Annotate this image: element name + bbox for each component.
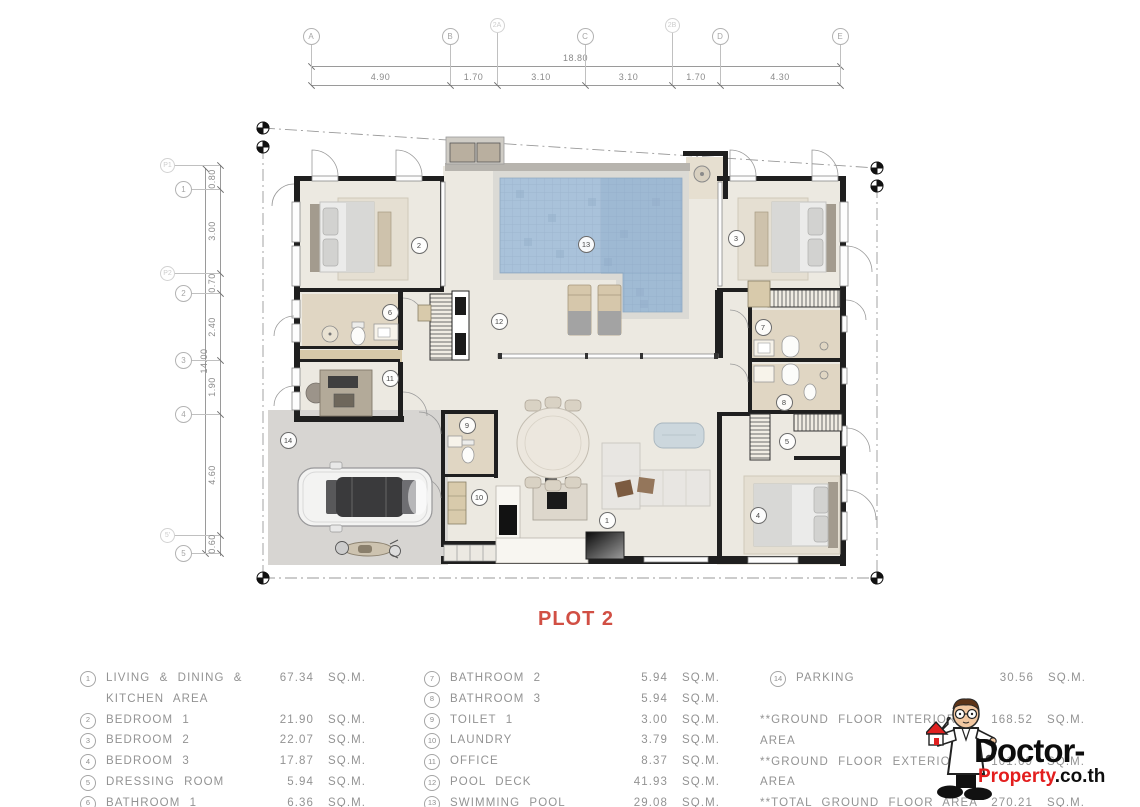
room-marker-9: 9 xyxy=(459,417,476,434)
legend-item: 1LIVING & DINING & KITCHEN AREA67.34SQ.M… xyxy=(80,668,380,710)
grid-stem xyxy=(840,45,841,85)
legend-item-unit: SQ.M. xyxy=(682,772,720,793)
floor-plan-page: 18.80AB2AC2BDE4.901.703.103.101.704.3014… xyxy=(0,0,1140,807)
bedroom1-bed xyxy=(310,198,408,280)
legend-item-name: OFFICE xyxy=(450,751,610,772)
legend-item-area: 41.93 xyxy=(610,772,668,793)
grid-bubble-left-2: 2 xyxy=(175,285,192,302)
room-marker-6: 6 xyxy=(382,304,399,321)
legend-item: 13SWIMMING POOL29.08SQ.M. xyxy=(424,793,714,807)
legend-item-area: 3.79 xyxy=(610,730,668,751)
legend-item-name: BATHROOM 1 xyxy=(106,793,264,807)
legend-item-name: BATHROOM 3 xyxy=(450,689,610,710)
legend-item: 11OFFICE8.37SQ.M. xyxy=(424,751,714,772)
legend-item-name: DRESSING ROOM xyxy=(106,772,264,793)
legend-item-number: 7 xyxy=(424,671,440,687)
tv-cabinet xyxy=(586,532,624,559)
legend-item-name: BEDROOM 2 xyxy=(106,730,264,751)
legend-item-area: 29.08 xyxy=(610,793,668,807)
legend-item-unit: SQ.M. xyxy=(328,772,366,793)
legend-item-area: 21.90 xyxy=(264,710,314,731)
dining-table xyxy=(517,397,589,491)
room-marker-2: 2 xyxy=(411,237,428,254)
legend-item-number: 1 xyxy=(80,671,96,687)
left-segment-dim-label: 2.40 xyxy=(207,307,219,347)
legend-item-name: POOL DECK xyxy=(450,772,610,793)
grid-bubble-left-1: 1 xyxy=(175,181,192,198)
grid-bubble-top-E: E xyxy=(832,28,849,45)
legend-item-area: 22.07 xyxy=(264,730,314,751)
room-marker-1: 1 xyxy=(599,512,616,529)
legend-item-area: 5.94 xyxy=(610,668,668,689)
legend-item-number: 3 xyxy=(80,733,96,749)
laundry-washer xyxy=(448,482,466,524)
grid-bubble-top-2B: 2B xyxy=(665,18,680,33)
legend-item: 8BATHROOM 35.94SQ.M. xyxy=(424,689,714,710)
legend-item: 6BATHROOM 16.36SQ.M. xyxy=(80,793,380,807)
top-segment-dim-label: 3.10 xyxy=(585,72,672,83)
top-segment-dim-label: 1.70 xyxy=(450,72,497,83)
grid-bubble-top-2A: 2A xyxy=(490,18,505,33)
legend-column-1: 1LIVING & DINING & KITCHEN AREA67.34SQ.M… xyxy=(80,668,380,807)
entry-steps xyxy=(444,545,496,561)
legend-item: 5DRESSING ROOM5.94SQ.M. xyxy=(80,772,380,793)
legend-item: 9TOILET 13.00SQ.M. xyxy=(424,710,714,731)
legend-item-unit: SQ.M. xyxy=(682,668,720,689)
legend-item-unit: SQ.M. xyxy=(682,751,720,772)
legend-item-unit: SQ.M. xyxy=(682,710,720,731)
legend-item-area: 5.94 xyxy=(264,772,314,793)
legend-item-number: 12 xyxy=(424,775,440,791)
legend-item-area: 30.56 xyxy=(976,668,1034,689)
legend-item-area: 5.94 xyxy=(610,689,668,710)
legend-item-number: 2 xyxy=(80,713,96,729)
grid-bubble-top-A: A xyxy=(303,28,320,45)
legend-item-area: 8.37 xyxy=(610,751,668,772)
legend-item-unit: SQ.M. xyxy=(682,793,720,807)
outdoor-shower xyxy=(694,166,710,182)
legend-item: 12POOL DECK41.93SQ.M. xyxy=(424,772,714,793)
room-marker-7: 7 xyxy=(755,319,772,336)
kitchen-island xyxy=(496,477,588,563)
watermark-text-property: Property.co.th xyxy=(978,766,1105,788)
grid-stem xyxy=(192,360,220,361)
grid-bubble-left-5: 5 xyxy=(175,545,192,562)
legend-column-3: 14PARKING30.56SQ.M. xyxy=(770,668,1100,689)
legend-item: 7BATHROOM 25.94SQ.M. xyxy=(424,668,714,689)
legend-item: 10LAUNDRY3.79SQ.M. xyxy=(424,730,714,751)
legend-item-number: 5 xyxy=(80,775,96,791)
grid-bubble-top-C: C xyxy=(577,28,594,45)
legend-item-number: 10 xyxy=(424,733,440,749)
top-segment-dim-line xyxy=(311,85,840,86)
grid-bubble-left-5': 5' xyxy=(160,528,175,543)
legend-item-unit: SQ.M. xyxy=(328,751,366,772)
grid-bubble-left-4: 4 xyxy=(175,406,192,423)
grid-bubble-top-B: B xyxy=(442,28,459,45)
legend-item-name: BEDROOM 1 xyxy=(106,710,264,731)
legend-item-area: 67.34 xyxy=(264,668,314,689)
legend-item: 3BEDROOM 222.07SQ.M. xyxy=(80,730,380,751)
grid-bubble-top-D: D xyxy=(712,28,729,45)
top-segment-dim-label: 1.70 xyxy=(672,72,720,83)
legend-item-name: LIVING & DINING & KITCHEN AREA xyxy=(106,668,264,710)
legend-item-number: 4 xyxy=(80,754,96,770)
legend-item-name: SWIMMING POOL xyxy=(450,793,610,807)
left-segment-dim-label: 0.70 xyxy=(207,263,219,303)
legend-item: 14PARKING30.56SQ.M. xyxy=(770,668,1100,689)
grid-bubble-left-P1: P1 xyxy=(160,158,175,173)
legend-item-unit: SQ.M. xyxy=(682,730,720,751)
grid-bubble-left-P2: P2 xyxy=(160,266,175,281)
legend-item-area: 3.00 xyxy=(610,710,668,731)
legend-item-unit: SQ.M. xyxy=(328,730,366,751)
left-segment-dim-label: 0.80 xyxy=(207,159,219,199)
room-marker-4: 4 xyxy=(750,507,767,524)
room-marker-12: 12 xyxy=(491,313,508,330)
top-segment-dim-label: 4.30 xyxy=(720,72,840,83)
legend-item-area: 6.36 xyxy=(264,793,314,807)
ac-units xyxy=(446,137,504,164)
legend-item-unit: SQ.M. xyxy=(328,793,366,807)
daybed-bench xyxy=(654,423,704,448)
legend-item-number: 6 xyxy=(80,796,96,807)
legend-item-name: TOILET 1 xyxy=(450,710,610,731)
legend-item-number: 8 xyxy=(424,692,440,708)
left-segment-dim-label: 3.00 xyxy=(207,211,219,251)
left-segment-dim-label: 4.60 xyxy=(207,455,219,495)
legend-item-unit: SQ.M. xyxy=(682,689,720,710)
grid-bubble-left-3: 3 xyxy=(175,352,192,369)
room-marker-11: 11 xyxy=(382,370,399,387)
grid-stem xyxy=(192,414,220,415)
legend-item-unit: SQ.M. xyxy=(328,710,366,731)
legend-item-name: BEDROOM 3 xyxy=(106,751,264,772)
left-segment-dim-label: 1.90 xyxy=(207,367,219,407)
legend-item-area: 17.87 xyxy=(264,751,314,772)
room-marker-14: 14 xyxy=(280,432,297,449)
legend-item-unit: SQ.M. xyxy=(1048,668,1086,689)
top-segment-dim-label: 3.10 xyxy=(497,72,585,83)
legend-column-2: 7BATHROOM 25.94SQ.M.8BATHROOM 35.94SQ.M.… xyxy=(424,668,714,807)
watermark-text-doctor: Doctor- xyxy=(974,732,1084,770)
legend-item-name: BATHROOM 2 xyxy=(450,668,610,689)
legend-item-name: LAUNDRY xyxy=(450,730,610,751)
legend-item-name: PARKING xyxy=(796,668,976,689)
legend-item-number: 14 xyxy=(770,671,786,687)
top-segment-dim-label: 4.90 xyxy=(311,72,450,83)
top-total-dim-line xyxy=(311,66,840,67)
bedroom2-bed xyxy=(738,198,836,280)
legend-item: 2BEDROOM 121.90SQ.M. xyxy=(80,710,380,731)
legend-item: 4BEDROOM 317.87SQ.M. xyxy=(80,751,380,772)
plot-title: PLOT 2 xyxy=(506,608,646,631)
room-marker-8: 8 xyxy=(776,394,793,411)
top-total-dim-label: 18.80 xyxy=(551,53,601,65)
room-marker-13: 13 xyxy=(578,236,595,253)
legend-item-number: 13 xyxy=(424,796,440,807)
room-marker-10: 10 xyxy=(471,489,488,506)
legend-item-number: 11 xyxy=(424,754,440,770)
car xyxy=(298,462,432,532)
left-segment-dim-label: 0.60 xyxy=(207,524,219,564)
room-marker-3: 3 xyxy=(728,230,745,247)
room-marker-5: 5 xyxy=(779,433,796,450)
watermark-logo: Doctor- Property.co.th xyxy=(912,692,1140,804)
legend-item-number: 9 xyxy=(424,713,440,729)
legend-item-unit: SQ.M. xyxy=(328,668,366,689)
